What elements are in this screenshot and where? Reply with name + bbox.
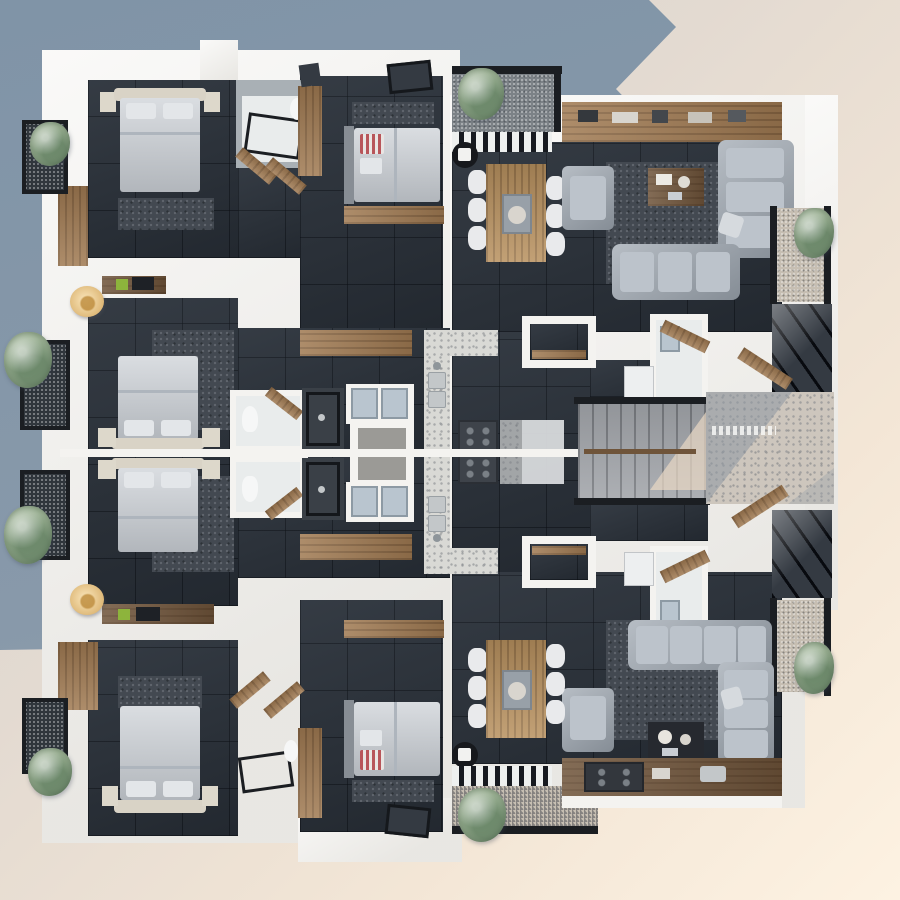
rug-tl: [118, 198, 214, 230]
bed-ml-top-headboard: [112, 438, 204, 449]
nightstand-bl-l: [102, 786, 118, 806]
sink-top-a: [428, 372, 446, 389]
balcony-rt-frame-l: [770, 206, 777, 304]
desk-bm: [344, 620, 444, 638]
kitchen-counter-bot-vert: [424, 452, 450, 574]
shelf-center-top: [300, 330, 412, 356]
bed-ml-bot-pillow-l: [124, 472, 154, 488]
sink-bot-a: [428, 496, 446, 513]
dining-br-bowl: [508, 682, 526, 700]
nightstand-tl-right: [204, 92, 220, 112]
dining-tr-bowl: [508, 206, 526, 224]
dining-tr-chair-r3: [546, 232, 565, 256]
bed-bm-pillow-striped: [360, 750, 384, 770]
dining-tr-chair-l3: [468, 226, 487, 250]
kitchen-tr-item-c: [652, 110, 668, 123]
dining-br-chair-r2: [546, 672, 565, 696]
sofa-tr-right-cushion-a: [726, 148, 784, 178]
dresser-br: [624, 552, 654, 586]
bed-bl-headboard: [114, 800, 206, 813]
bed-ml-top-foldline: [118, 390, 198, 393]
bed-tm-pillow-striped: [360, 134, 384, 154]
sofa-tr-bottom-cushion-c: [696, 252, 730, 292]
sofa-tr-bottom-cushion-a: [620, 252, 654, 292]
sofa-br-top-cushion-d: [738, 626, 766, 664]
bed-tm-pillow: [360, 158, 382, 174]
rug-bm: [352, 780, 434, 802]
bed-ml-top-pillow-r: [161, 420, 191, 436]
kitchen-tr-counter: [562, 102, 782, 142]
stair-hall-bottom-floor: [590, 505, 708, 541]
nightstand-ml-b: [202, 428, 220, 447]
bed-ml-top-pillow-l: [124, 420, 154, 436]
toilet-bl: [284, 740, 298, 762]
dining-br-chair-r1: [546, 644, 565, 668]
nightstand-ml-c: [98, 460, 116, 479]
tv-ml-top: [132, 277, 154, 290]
coffee-br-plate-b: [680, 734, 691, 745]
dining-br-chair-l1: [468, 648, 487, 672]
shelf-center-bottom: [300, 534, 412, 560]
closet-tr-shelf: [532, 350, 586, 359]
hat-ml-top: [70, 286, 104, 317]
book-ml-top: [116, 279, 128, 290]
shower-fixture-b: [318, 486, 325, 493]
sofa-br-top-cushion-b: [670, 626, 702, 664]
sofa-br-right-cushion-c: [724, 730, 768, 758]
nightstand-ml-a: [98, 428, 116, 447]
desk-tl: [58, 186, 88, 266]
faucet-top: [433, 362, 441, 370]
dining-tr-chair-l1: [468, 170, 487, 194]
stove-br: [584, 762, 644, 792]
hall-light-top: [522, 420, 564, 452]
sink-top-b: [428, 391, 446, 408]
bed-tl-pillow-right: [163, 103, 193, 119]
closet-bot-bin-a: [351, 486, 378, 517]
kitchen-tr-item-d: [688, 112, 712, 123]
bed-ml-bot-pillow-r: [161, 472, 191, 488]
closet-bot-bin-b: [381, 486, 408, 517]
book-bl: [118, 609, 130, 620]
bed-bl-pillow-l: [126, 781, 156, 797]
sofa-br-top-cushion-c: [704, 626, 736, 664]
coffee-tr-papers: [656, 174, 672, 185]
coffee-tr-plate: [678, 176, 690, 188]
kitchen-counter-top-gray: [500, 420, 522, 452]
porch-doormat: [712, 426, 776, 435]
stair-beam-bottom: [574, 498, 710, 505]
dining-br-chair-l3: [468, 704, 487, 728]
sink-br: [700, 766, 726, 782]
balcony-top-rail-post: [554, 66, 561, 132]
kitchen-br-band: [562, 796, 782, 808]
dining-tr-chair-l2: [468, 198, 487, 222]
coffee-br-plate-a: [658, 730, 672, 744]
closet-top-bin-a: [351, 388, 378, 419]
stair-beam-top: [574, 397, 710, 404]
armchair-br-cushion: [570, 696, 606, 740]
coffee-br-deco: [662, 748, 678, 756]
stove-top: [458, 420, 498, 452]
wardrobe-tm: [298, 86, 322, 176]
bed-bm-foldline: [394, 702, 397, 776]
kitchen-tr-item-b: [612, 112, 638, 123]
shower-fixture-a: [318, 414, 325, 421]
bed-tm-headboard: [344, 126, 354, 204]
window-tm-top: [299, 63, 322, 88]
tv-bl: [136, 607, 160, 621]
dining-br-chair-l2: [468, 676, 487, 700]
sink-bot-b: [428, 515, 446, 532]
faucet-bot: [433, 534, 441, 542]
rug-tm: [352, 102, 434, 124]
bed-bl-foldline: [120, 766, 200, 769]
window-panel-tm: [387, 60, 434, 94]
kitchen-tr-item-a: [578, 110, 598, 122]
desk-tm: [344, 206, 444, 224]
dining-br-chair-r3: [546, 700, 565, 724]
armchair-tr-cushion: [570, 176, 606, 220]
bed-tl-foldline: [120, 132, 200, 135]
side-table-tr-top: [458, 148, 471, 161]
bed-bm-pillow: [360, 730, 382, 746]
toilet-ml-bot: [242, 476, 258, 502]
side-table-br-top: [458, 748, 471, 761]
bed-bm-headboard: [344, 700, 354, 778]
bed-ml-bot-foldline: [118, 516, 198, 519]
dresser-tr: [624, 366, 654, 400]
stair-handrail: [584, 449, 696, 454]
floor-plan-3d-render: [0, 0, 900, 900]
toilet-ml-top: [242, 406, 258, 432]
kitchen-br-item: [652, 768, 670, 779]
coffee-tr-deco: [668, 192, 682, 200]
closet-br-shelf: [532, 546, 586, 555]
bed-bl-pillow-r: [163, 781, 193, 797]
bed-tm-foldline: [394, 128, 397, 202]
glazed-balcony-rb: [772, 510, 832, 598]
divider-wall: [60, 449, 610, 457]
window-panel-bm: [385, 804, 432, 838]
nightstand-bl-r: [202, 786, 218, 806]
closet-top-bin-b: [381, 388, 408, 419]
wardrobe-bm: [298, 728, 322, 818]
bed-tl-pillow-left: [126, 103, 156, 119]
hat-bl: [70, 584, 104, 615]
nightstand-ml-d: [202, 460, 220, 479]
sofa-tr-bottom-cushion-b: [658, 252, 692, 292]
louver-bottom: [452, 766, 552, 786]
rug-bl: [118, 676, 202, 708]
kitchen-tr-item-e: [728, 110, 746, 122]
sofa-br-top-cushion-a: [636, 626, 668, 664]
